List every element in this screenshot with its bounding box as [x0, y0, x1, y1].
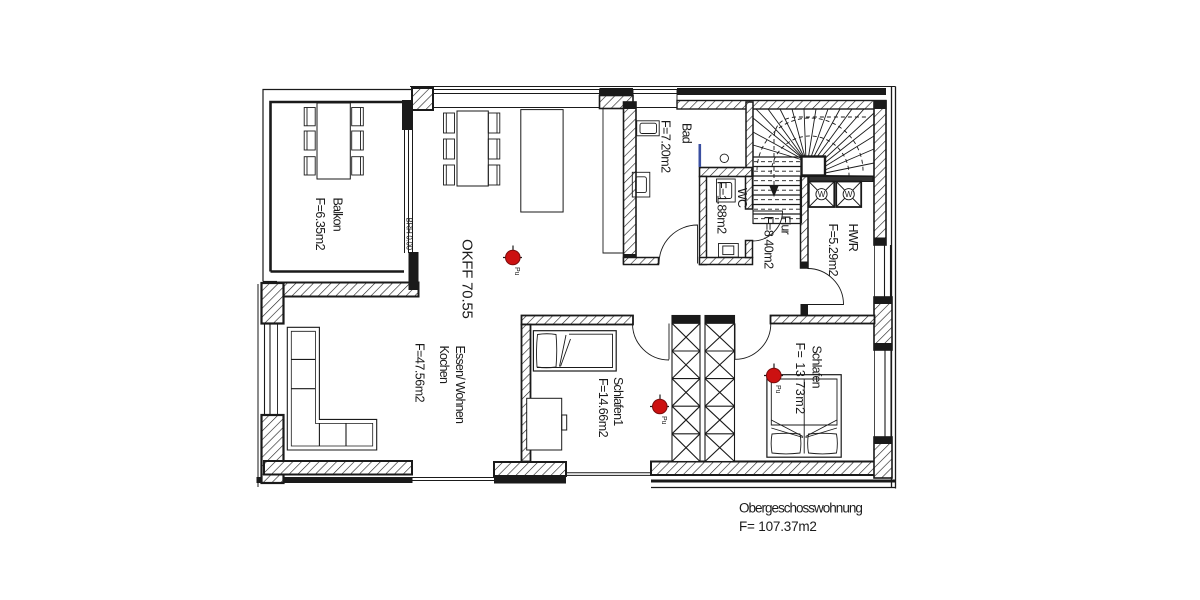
svg-text:HWR: HWR [846, 224, 860, 252]
svg-text:Schlafen: Schlafen [810, 346, 824, 389]
svg-text:Flur: Flur [779, 216, 793, 235]
svg-text:Bad: Bad [680, 123, 694, 144]
svg-text:F=8.40m2: F=8.40m2 [762, 216, 776, 269]
svg-text:F=14.66m2: F=14.66m2 [596, 378, 610, 438]
svg-text:Pu: Pu [774, 385, 781, 394]
svg-text:F=7.20m2: F=7.20m2 [659, 120, 673, 173]
svg-text:F=1.88m2: F=1.88m2 [715, 181, 729, 234]
svg-text:Balkon: Balkon [331, 198, 345, 232]
svg-text:F=6.35m2: F=6.35m2 [313, 198, 327, 251]
svg-text:F= 107.37m2: F= 107.37m2 [739, 519, 817, 534]
svg-text:BRH 0.00: BRH 0.00 [405, 218, 414, 251]
svg-text:F=5.29m2: F=5.29m2 [826, 224, 840, 277]
svg-text:WC: WC [735, 188, 749, 208]
svg-text:F= 13.73m2: F= 13.73m2 [793, 343, 807, 415]
svg-text:F=47.56m2: F=47.56m2 [413, 343, 427, 403]
svg-text:Schlafen1: Schlafen1 [611, 377, 625, 426]
svg-text:OKFF 70.55: OKFF 70.55 [459, 239, 476, 319]
svg-text:Pu: Pu [660, 416, 667, 425]
svg-text:W: W [845, 190, 853, 199]
svg-text:Kochen: Kochen [437, 346, 451, 384]
svg-text:Obergeschosswohnung: Obergeschosswohnung [739, 501, 862, 516]
svg-text:W: W [818, 190, 826, 199]
svg-text:Pu: Pu [513, 267, 520, 276]
svg-text:Essen/ Wohnen: Essen/ Wohnen [453, 346, 467, 424]
